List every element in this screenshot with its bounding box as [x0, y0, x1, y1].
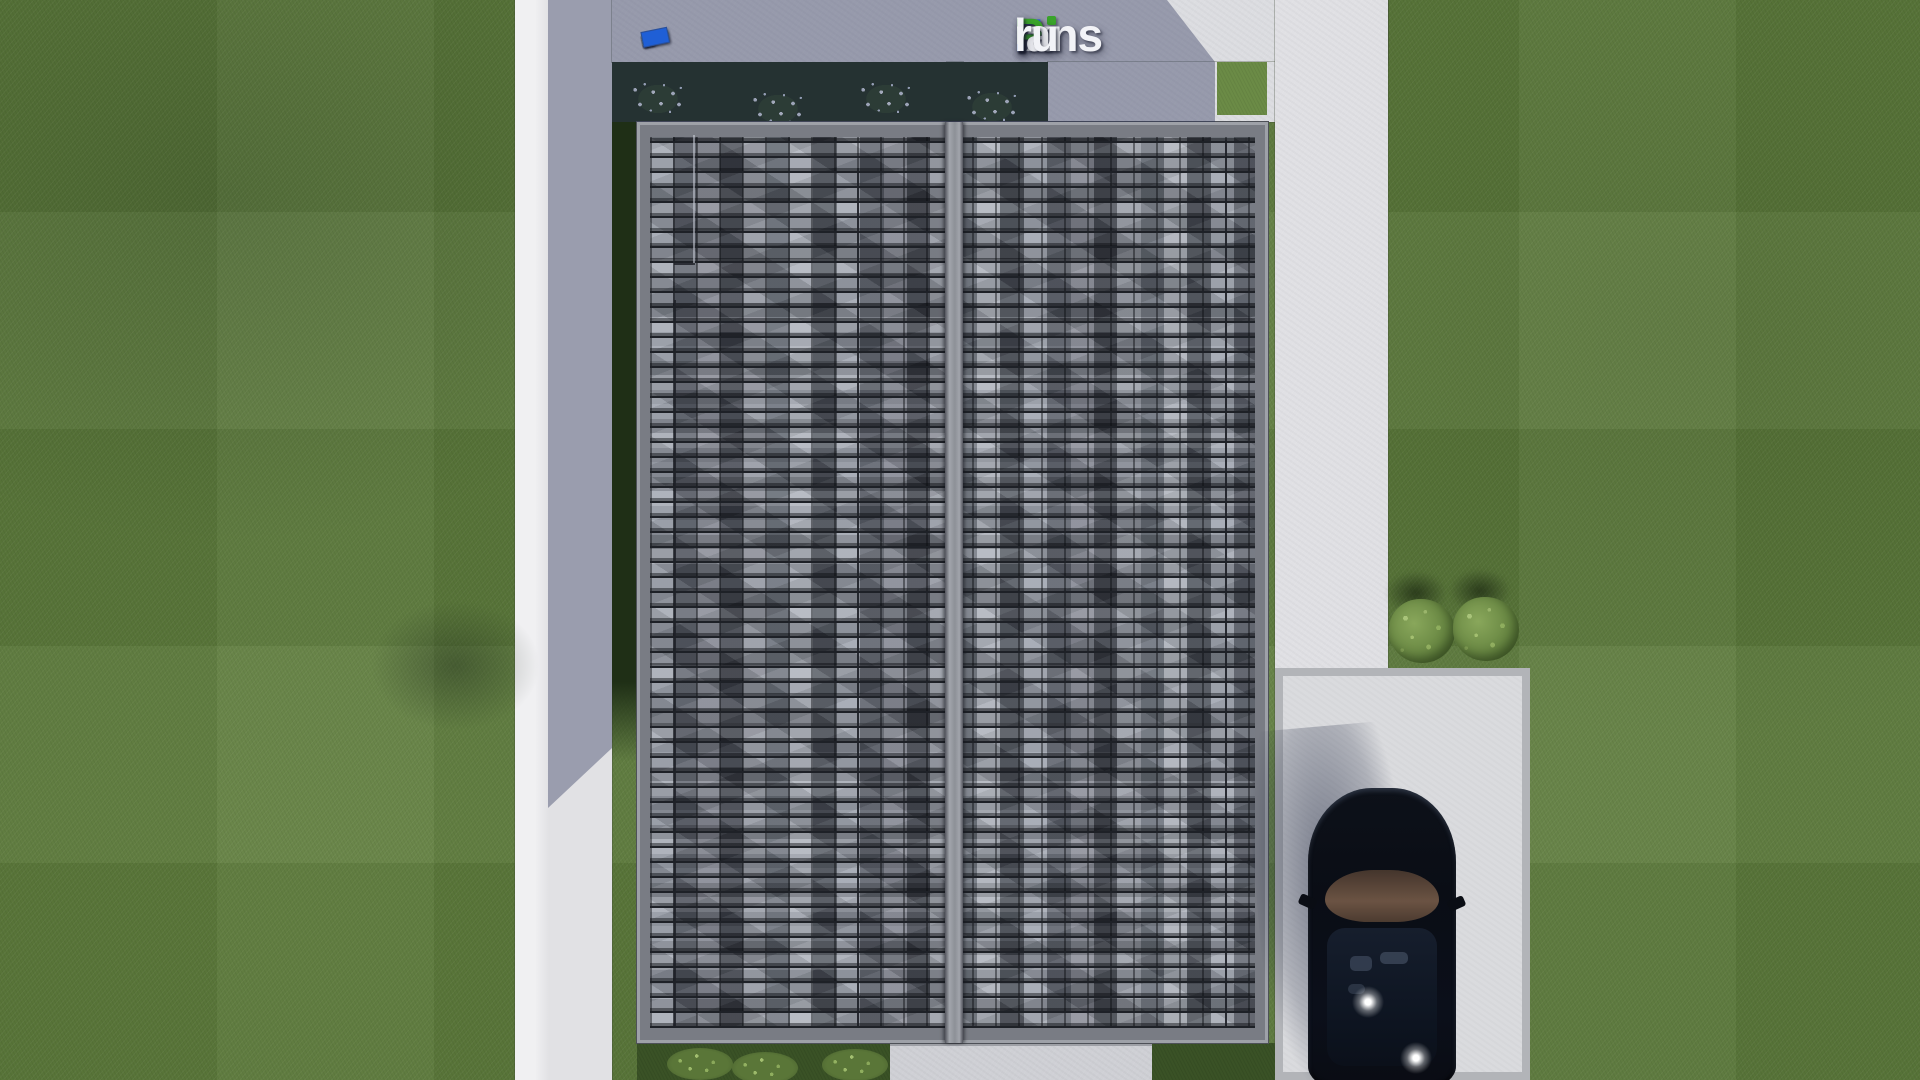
corner-grass-patch: [1217, 62, 1267, 115]
garden-bush: [732, 1052, 798, 1080]
sun-glint: [1394, 1036, 1438, 1080]
garden-bush: [667, 1048, 733, 1080]
flower-bush: [628, 76, 688, 122]
roof-gutter-jog: [674, 263, 695, 265]
left-walkway-path: [515, 0, 612, 1080]
sun-glint: [1346, 980, 1390, 1024]
car-reflection: [1350, 956, 1372, 971]
left-garden-bed: [612, 62, 637, 762]
roof-ridge: [945, 122, 963, 1043]
garden-bush: [822, 1049, 888, 1080]
top-plaza-concrete: [612, 0, 1388, 62]
car-reflection: [1380, 952, 1408, 964]
roof-gutter-pipe: [1225, 140, 1227, 1028]
site-render-scene: FixPlans.ru: [0, 0, 1920, 1080]
roof-gutter-pipe: [857, 168, 859, 1028]
logo-letter: ru: [1014, 10, 1058, 60]
bottom-patio-concrete: [890, 1046, 1152, 1080]
round-bush: [1389, 599, 1455, 663]
house-roof: [637, 122, 1268, 1043]
flower-bush: [856, 76, 916, 122]
car-rear-window: [1325, 870, 1439, 922]
roof-seam-line: [693, 135, 695, 265]
parked-car: [1308, 788, 1456, 1080]
round-bush: [1453, 597, 1519, 661]
roof-gutter-pipe: [674, 300, 676, 1028]
